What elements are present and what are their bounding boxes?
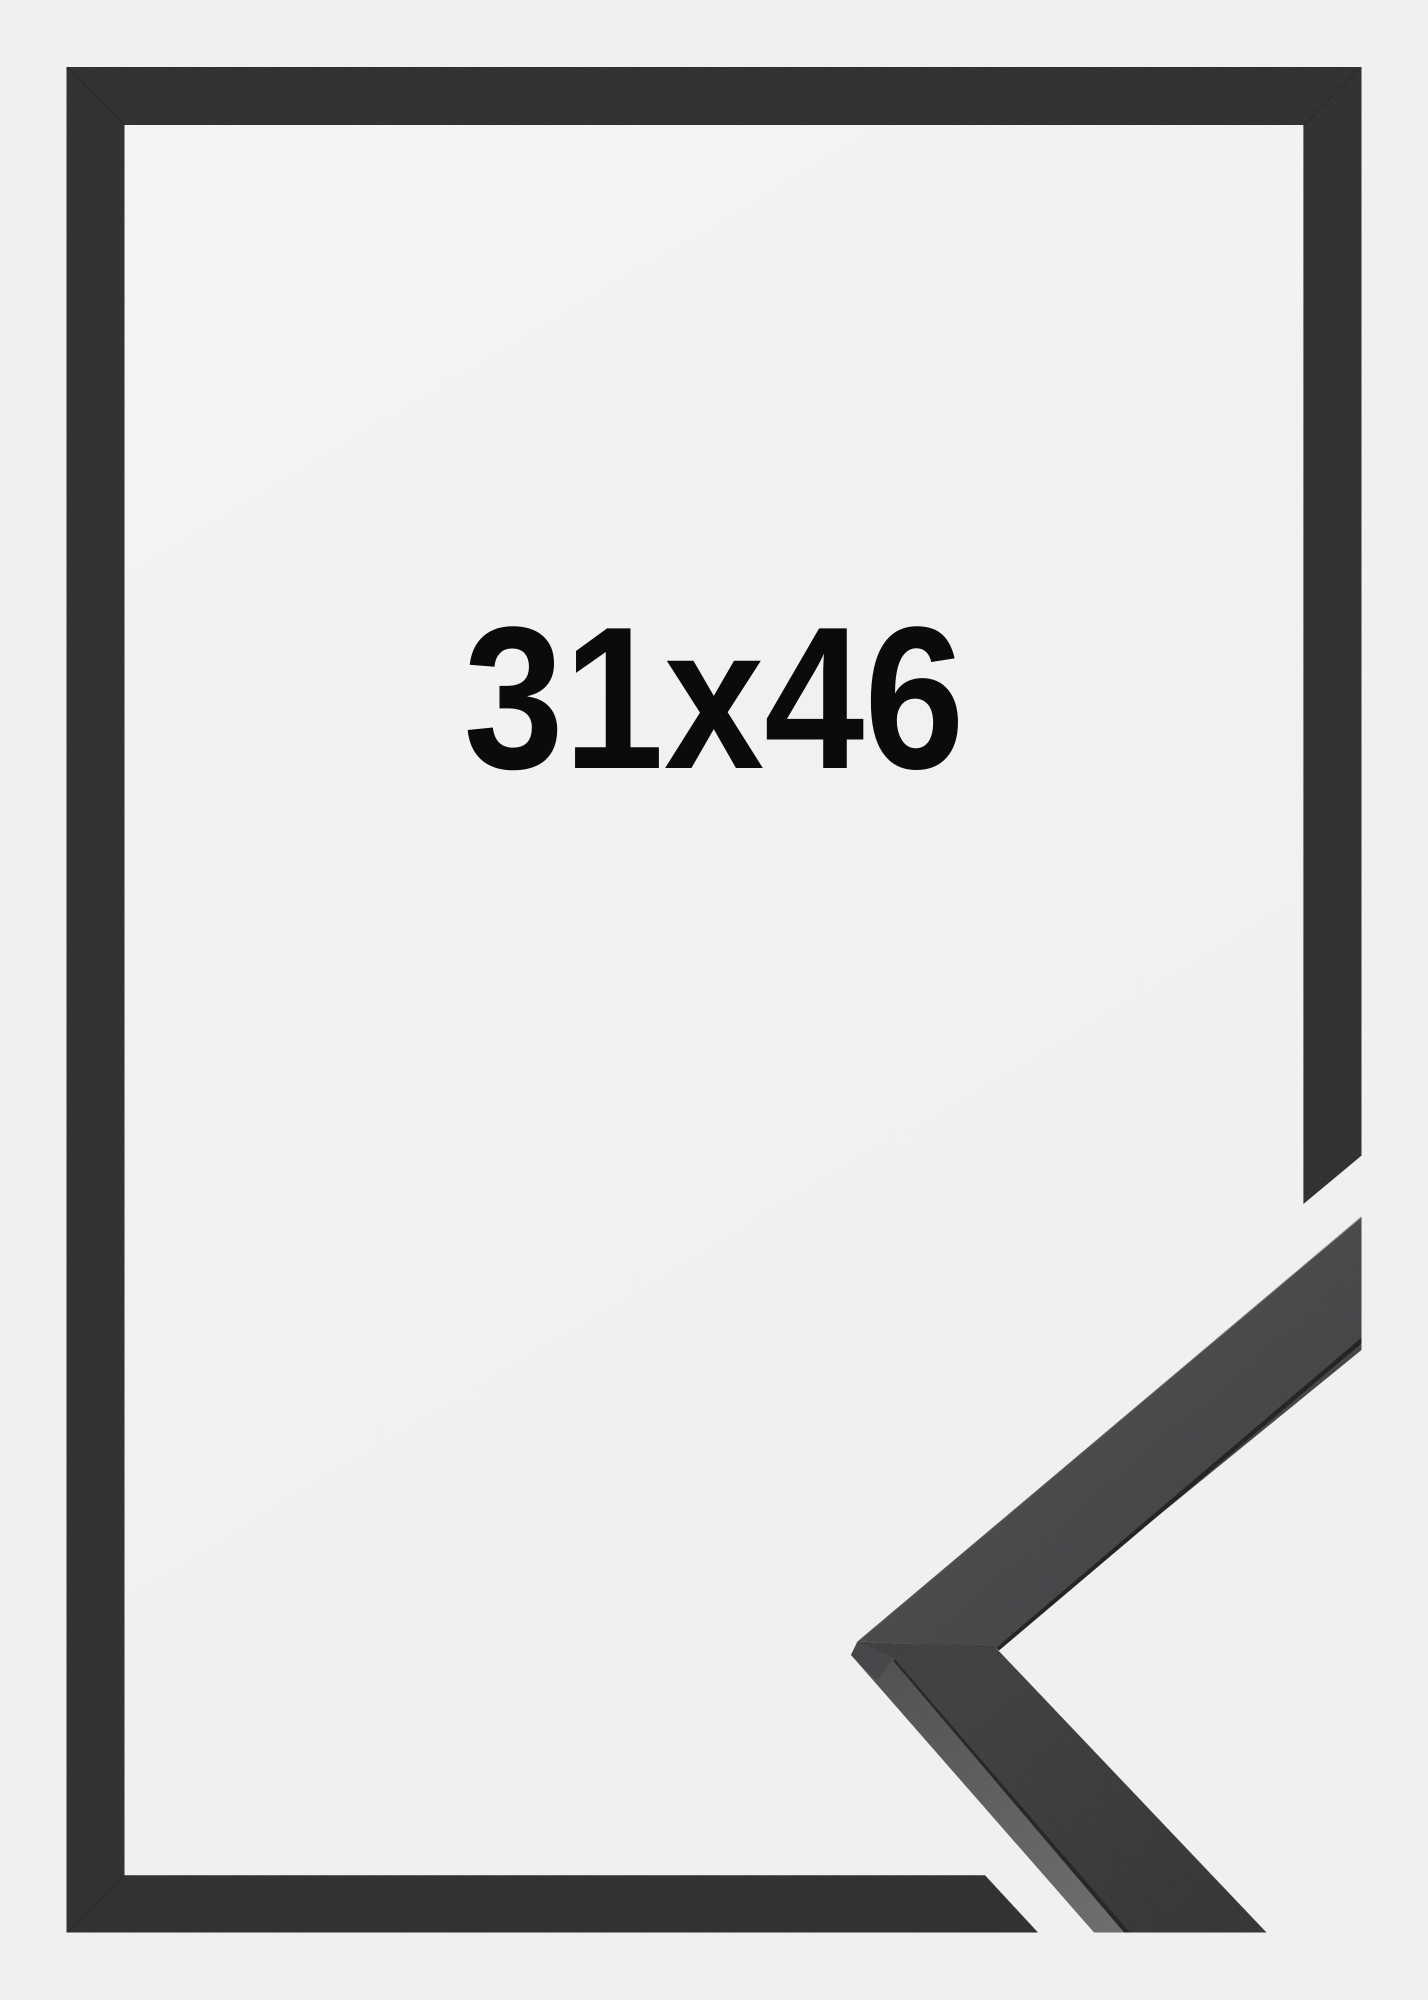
svg-text:31x46: 31x46 xyxy=(464,584,965,811)
